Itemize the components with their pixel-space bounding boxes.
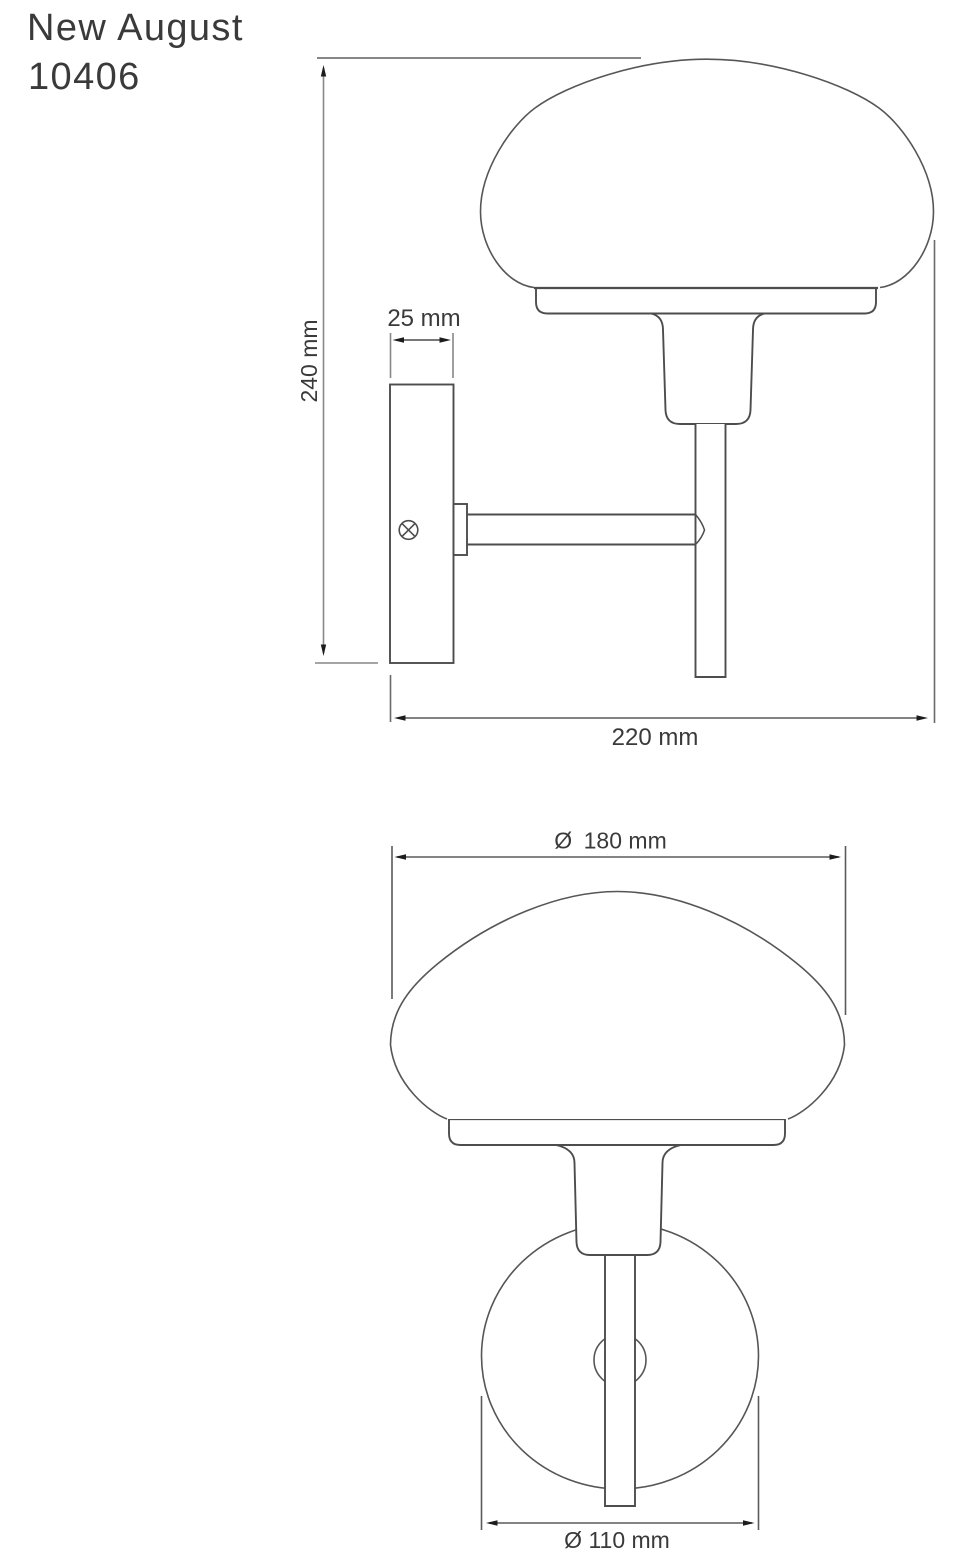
svg-text:Ø 110 mm: Ø 110 mm [564, 1527, 670, 1553]
svg-text:25 mm: 25 mm [387, 305, 460, 332]
svg-text:220 mm: 220 mm [612, 724, 699, 751]
svg-text:Ø 180 mm: Ø 180 mm [554, 828, 666, 854]
svg-text:10406: 10406 [28, 56, 141, 98]
svg-text:New August: New August [27, 7, 244, 49]
svg-text:240 mm: 240 mm [296, 319, 322, 402]
